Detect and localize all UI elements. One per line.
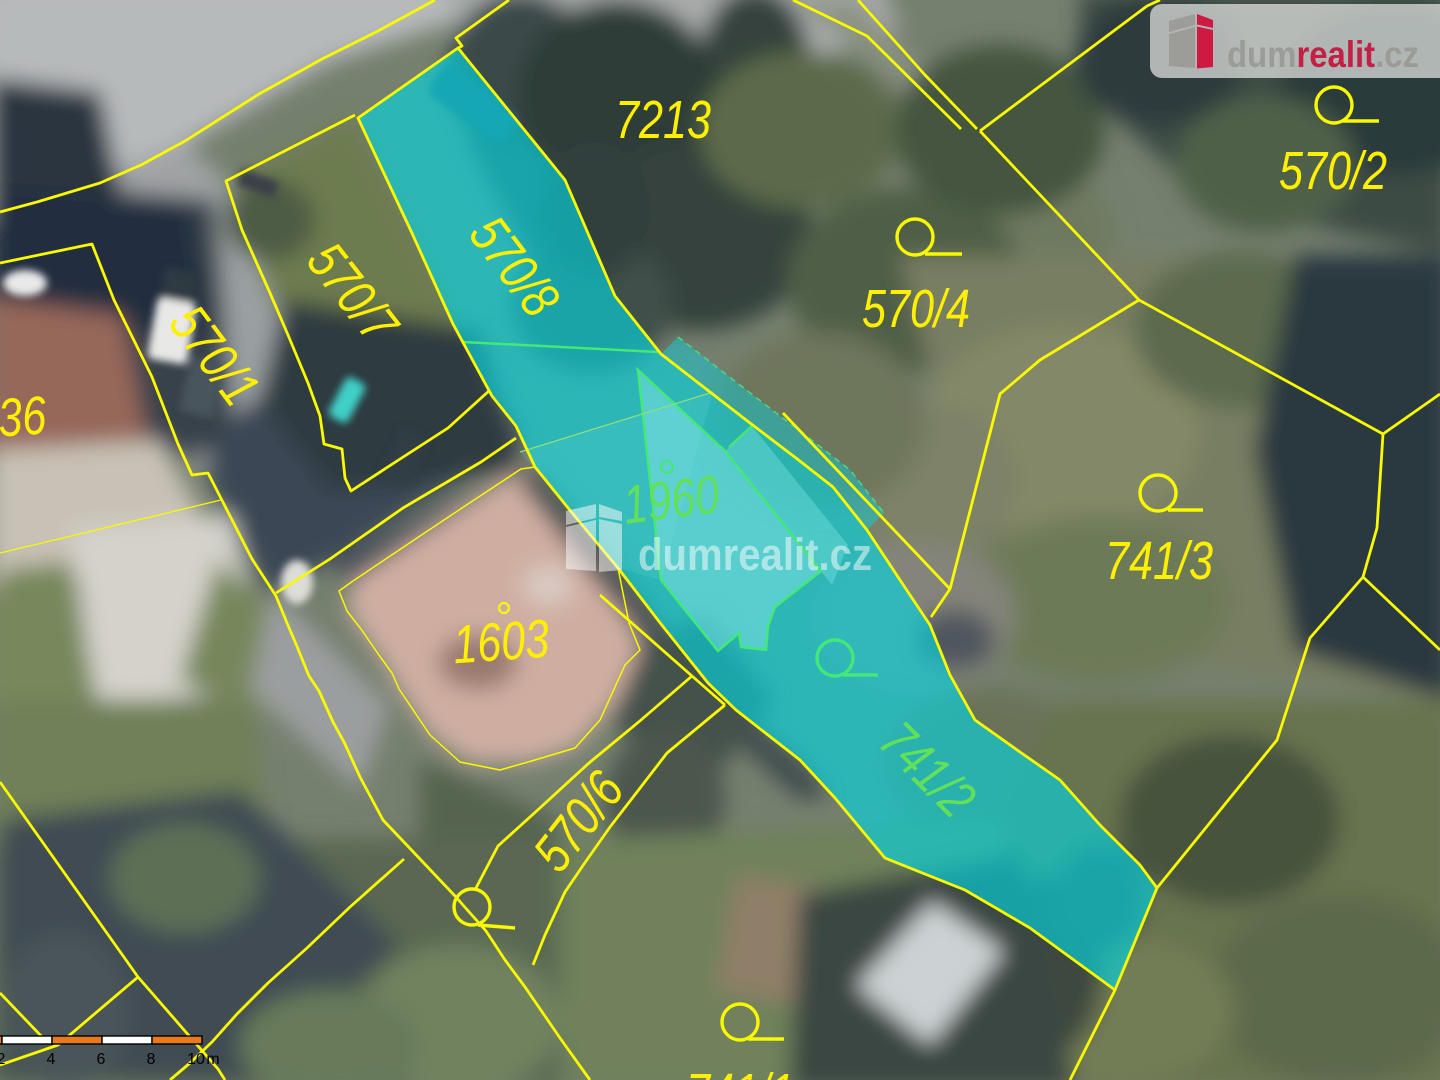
svg-text:m: m <box>206 1051 219 1068</box>
svg-text:8: 8 <box>147 1051 156 1068</box>
svg-text:dumrealit.cz: dumrealit.cz <box>1227 34 1419 75</box>
svg-text:4: 4 <box>47 1051 56 1068</box>
svg-text:570/2: 570/2 <box>1279 142 1387 202</box>
svg-text:36: 36 <box>0 386 49 449</box>
svg-text:1960: 1960 <box>620 465 723 536</box>
svg-text:2: 2 <box>0 1051 6 1068</box>
svg-text:dumrealit.cz: dumrealit.cz <box>638 529 872 580</box>
svg-text:741/1: 741/1 <box>686 1064 794 1080</box>
svg-text:741/3: 741/3 <box>1105 532 1213 592</box>
svg-text:10: 10 <box>187 1051 205 1068</box>
svg-text:1603: 1603 <box>451 609 551 675</box>
svg-text:7213: 7213 <box>615 91 711 151</box>
svg-text:6: 6 <box>97 1051 106 1068</box>
svg-text:570/4: 570/4 <box>862 280 970 340</box>
